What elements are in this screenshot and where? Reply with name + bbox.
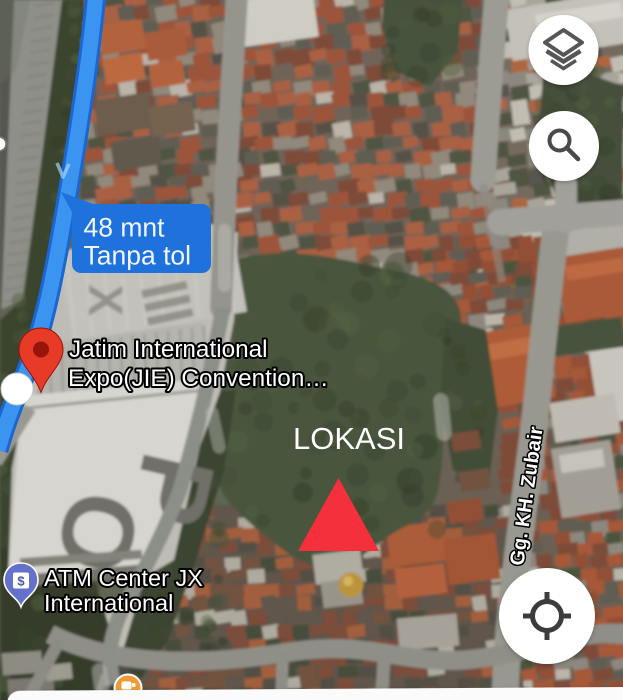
svg-text:ATM Center JX: ATM Center JX [44,565,203,591]
svg-text:International: International [44,590,173,616]
svg-text:$: $ [17,574,25,589]
svg-text:Jatim International: Jatim International [69,336,268,363]
svg-text:Expo(JIE) Convention…: Expo(JIE) Convention… [68,365,329,392]
svg-text:LOKASI: LOKASI [293,421,405,456]
svg-text:48 mnt: 48 mnt [84,213,166,243]
svg-text:Tanpa tol: Tanpa tol [84,241,192,271]
